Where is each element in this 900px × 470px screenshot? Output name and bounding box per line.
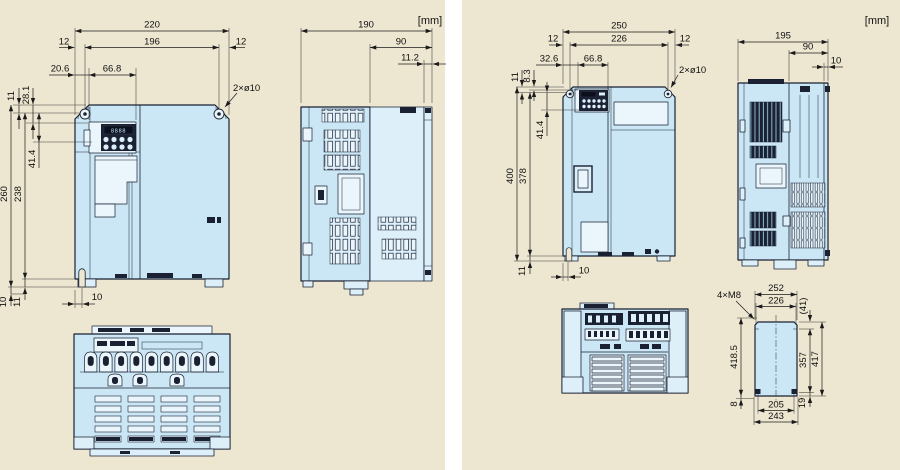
dim-m-hole-height: 357 xyxy=(798,352,809,368)
dim-m-width-inner: 226 xyxy=(768,296,784,307)
mounting-slot-bottom-r xyxy=(566,248,572,261)
right-front-view xyxy=(563,87,675,261)
dim-rf-top-to-hole: 11 xyxy=(510,72,521,82)
dim-rf-keypad-width: 66.8 xyxy=(584,54,603,65)
right-keypad xyxy=(575,89,609,112)
right-side-view xyxy=(738,79,830,269)
dim-lf-hole-height: 238 xyxy=(13,186,24,202)
right-bottom-view xyxy=(562,303,688,393)
dim-rf-bottom-11: 11 xyxy=(517,266,528,276)
left-side-view xyxy=(301,107,432,295)
dim-rf-hole-span: 226 xyxy=(611,34,627,45)
dim-ls-front-depth: 90 xyxy=(396,37,407,48)
units-label-left: [mm] xyxy=(418,15,442,27)
mounting-slot-bottom xyxy=(79,269,85,287)
dim-lf-overall-height: 260 xyxy=(0,186,10,202)
dim-rs-front-depth: 90 xyxy=(803,42,814,53)
dim-lf-hole-callout: 2×ø10 xyxy=(233,83,260,94)
dim-rf-keypad-offset: 32.6 xyxy=(540,54,559,65)
dimension-drawing-page: [mm] [mm] 8888 xyxy=(0,0,900,470)
dim-lf-bottom-11: 11 xyxy=(12,297,23,307)
dim-rs-depth: 195 xyxy=(775,31,791,42)
dim-rf-keypad-height: 41.4 xyxy=(535,121,546,140)
dim-rf-overall-height: 400 xyxy=(505,168,516,184)
dim-lf-slot-offset: 10 xyxy=(92,292,103,303)
dim-m-bottom-19: 19 xyxy=(797,398,808,409)
dim-rf-hole-height: 378 xyxy=(518,168,529,184)
dim-m-bolt-callout: 4×M8 xyxy=(717,290,741,301)
dim-lf-edge-left: 12 xyxy=(59,37,70,48)
dim-m-bottom-8: 8 xyxy=(729,401,740,406)
mounting-hole-top-right-r xyxy=(664,90,672,98)
dim-lf-keypad-width: 66.8 xyxy=(103,64,122,75)
dim-lf-keypad-height: 41.4 xyxy=(27,150,38,169)
dim-ls-depth: 190 xyxy=(358,20,374,31)
left-front-view: 8888 xyxy=(75,105,229,287)
dimension-drawing: [mm] [mm] 8888 xyxy=(0,0,900,470)
dim-lf-bottom-10: 10 xyxy=(0,297,9,308)
units-label-right: [mm] xyxy=(865,15,889,27)
dim-lf-keypad-offset: 20.6 xyxy=(51,64,70,75)
dim-lf-overall-width: 220 xyxy=(144,20,160,31)
dim-rf-hole-callout: 2×ø10 xyxy=(679,65,706,76)
dim-rf-slot-offset: 10 xyxy=(579,266,590,277)
dim-lf-top-to-hole: 11 xyxy=(6,91,17,101)
left-keypad: 8888 xyxy=(84,122,136,153)
dim-m-top-offset: (41) xyxy=(798,298,809,315)
dim-m-width-outer: 252 xyxy=(768,283,784,294)
dim-m-width-bottom: 243 xyxy=(768,411,784,422)
dim-rf-overall-width: 250 xyxy=(611,21,627,32)
dim-rf-edge-left: 12 xyxy=(548,34,559,45)
dim-lf-top-to-keypad: 28.1 xyxy=(21,86,32,105)
dim-m-hole-width: 205 xyxy=(768,400,784,411)
mounting-hole-top-left xyxy=(80,109,90,119)
dim-rf-top-to-keypad: 8.3 xyxy=(522,69,533,82)
mounting-hole-top-left-r xyxy=(566,90,574,98)
dim-lf-hole-span: 196 xyxy=(144,37,160,48)
dim-m-overall-height: 417 xyxy=(810,351,821,367)
dim-rf-edge-right: 12 xyxy=(680,34,691,45)
mounting-hole-top-right xyxy=(214,109,224,119)
dim-rs-flange-depth: 10 xyxy=(831,56,842,67)
keypad-display: 8888 xyxy=(111,129,126,135)
dim-ls-flange-depth: 11.2 xyxy=(401,53,419,64)
dim-lf-edge-right: 12 xyxy=(236,37,247,48)
left-bottom-view xyxy=(74,326,230,456)
dim-m-total-height-left: 418.5 xyxy=(729,345,740,369)
